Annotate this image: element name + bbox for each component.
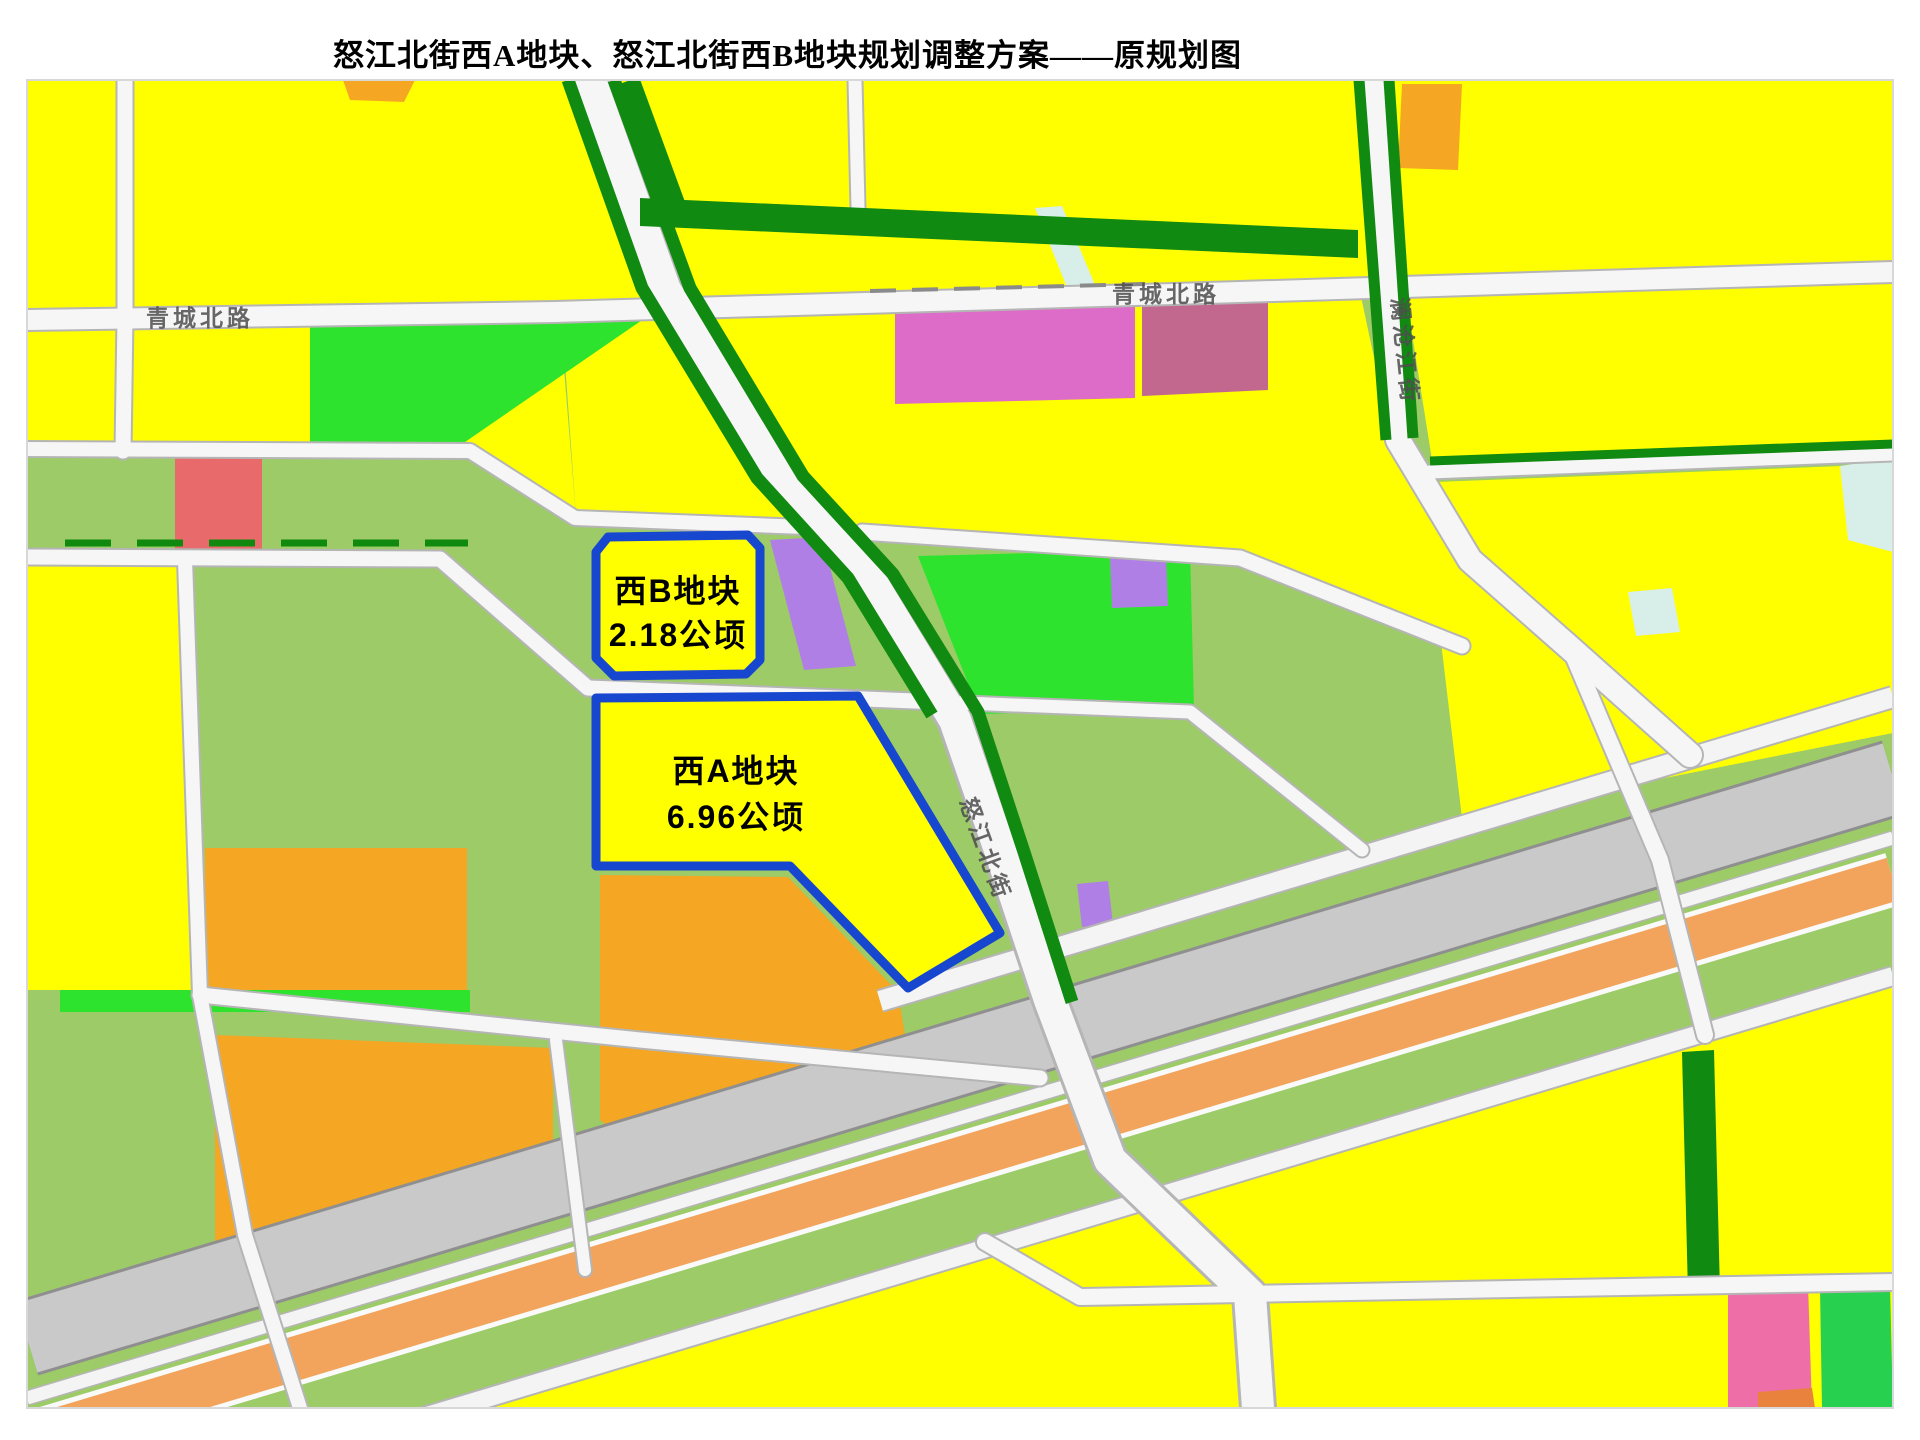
orange-parcel-topright	[1398, 84, 1462, 170]
plot-west-b-name: 西B地块	[614, 573, 741, 609]
water-patch-right	[1840, 458, 1893, 552]
dark-green-strip-se	[1682, 1050, 1720, 1294]
purple-parcel-a	[1110, 554, 1168, 608]
red-parcel	[175, 452, 262, 552]
plot-west-a-area: 6.96公顷	[667, 799, 805, 835]
green-parcel-se	[1820, 1286, 1893, 1408]
planning-map: 西B地块 2.18公顷 西A地块 6.96公顷 青城北路 青城北路 怒江北街 澜…	[0, 0, 1920, 1440]
planning-map-page: 怒江北街西A地块、怒江北街西B地块规划调整方案——原规划图	[0, 0, 1920, 1440]
purple-parcel-b	[1077, 881, 1113, 927]
label-qingcheng-right: 青城北路	[1112, 281, 1220, 307]
plot-west-b-area: 2.18公顷	[609, 617, 747, 653]
violet-parcel	[895, 306, 1135, 404]
water-patch-interchange	[1628, 588, 1680, 636]
orange-parcel-southwest-upper	[205, 848, 467, 990]
rose-parcel	[1142, 300, 1268, 396]
label-qingcheng-left: 青城北路	[146, 305, 254, 331]
orange-parcel-top	[343, 80, 415, 102]
plot-west-a-name: 西A地块	[672, 753, 799, 789]
